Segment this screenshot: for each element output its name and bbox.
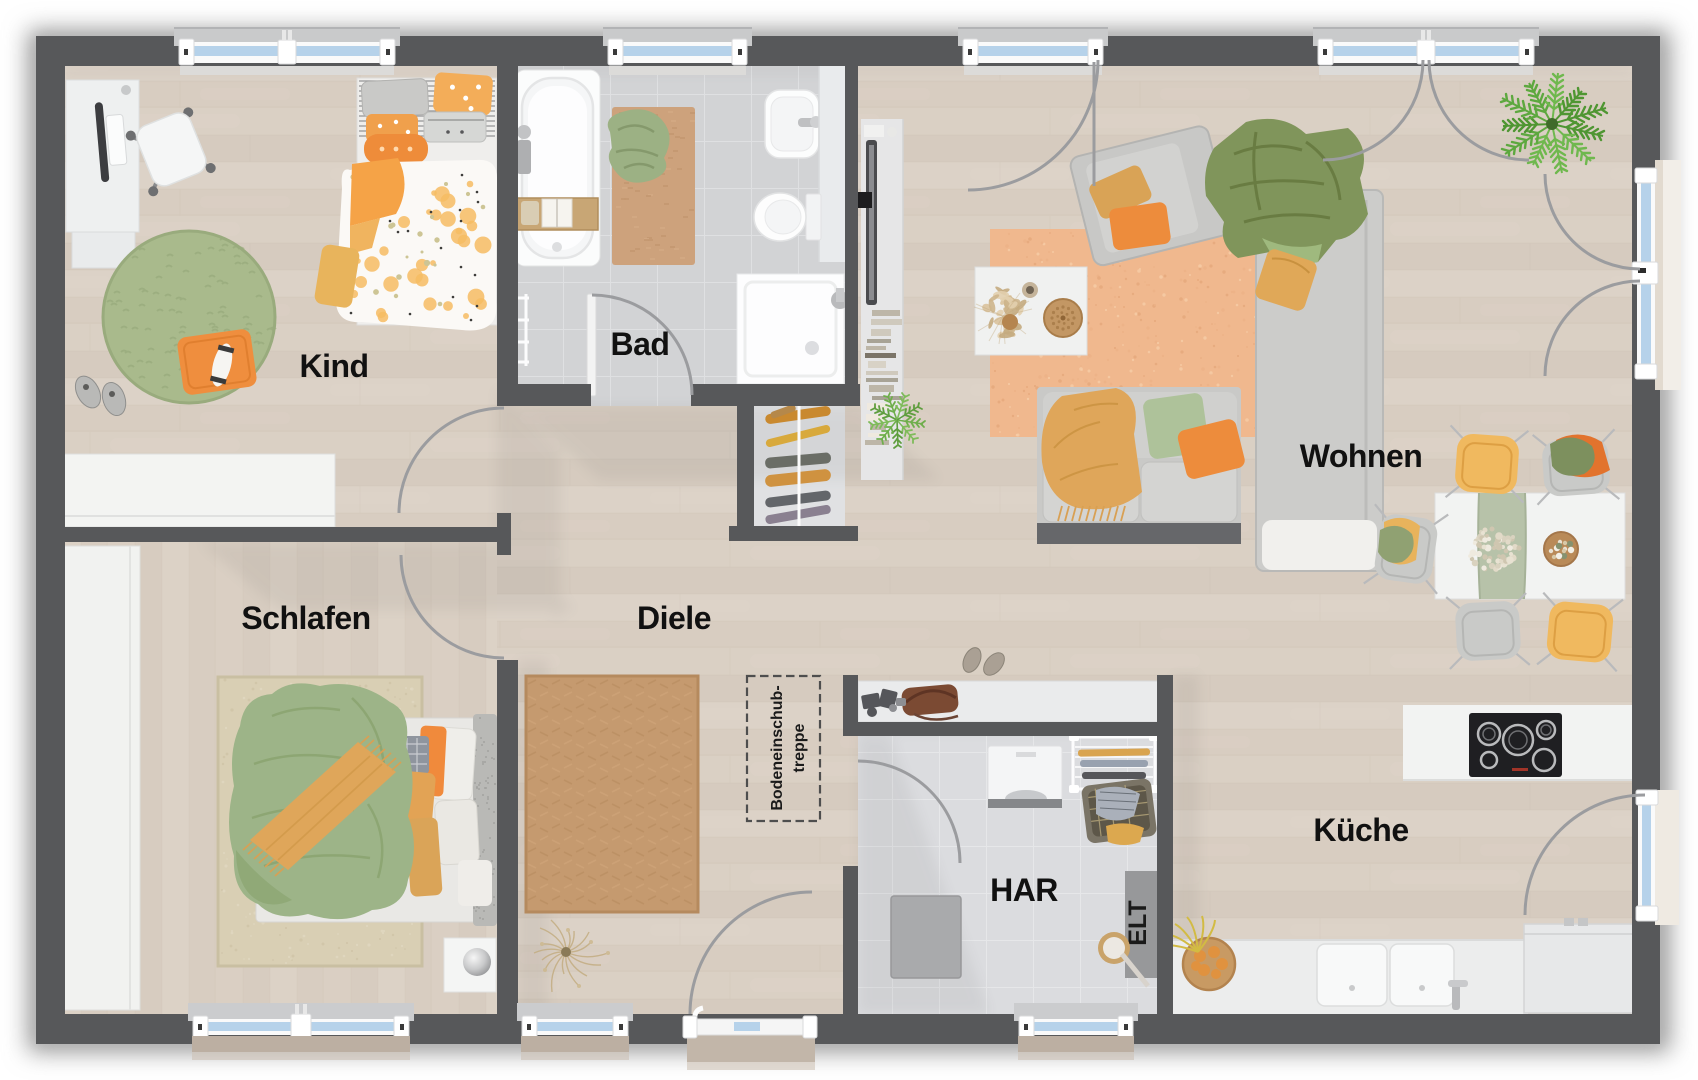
svg-text:Bad: Bad [611, 326, 670, 362]
svg-text:Kind: Kind [299, 348, 368, 384]
svg-text:Küche: Küche [1313, 812, 1408, 848]
svg-text:Wohnen: Wohnen [1300, 438, 1423, 474]
svg-text:ELT: ELT [1124, 900, 1152, 945]
svg-text:Diele: Diele [637, 600, 711, 636]
svg-text:Schlafen: Schlafen [241, 600, 370, 636]
svg-text:HAR: HAR [990, 872, 1058, 908]
